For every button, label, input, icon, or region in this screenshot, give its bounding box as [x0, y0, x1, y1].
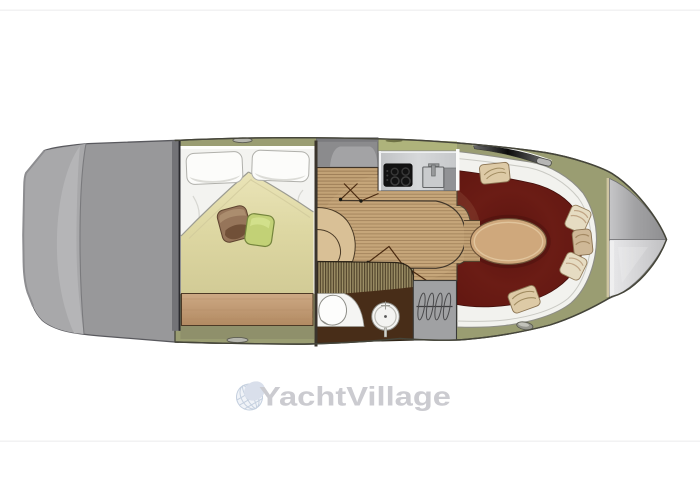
svg-text:YachtVillage: YachtVillage	[259, 382, 451, 412]
